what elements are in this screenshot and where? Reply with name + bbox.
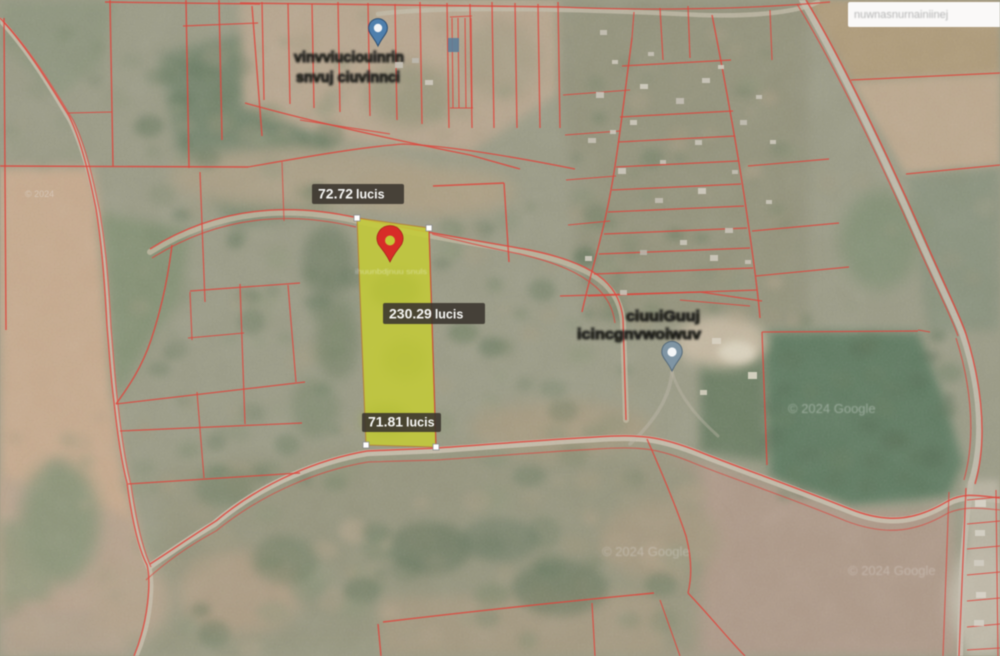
- svg-text:icincgnvwoiwuv: icincgnvwoiwuv: [577, 327, 701, 343]
- svg-text:vinvviuciouinrin: vinvviuciouinrin: [294, 49, 404, 66]
- svg-text:© 2024 Google: © 2024 Google: [848, 563, 936, 578]
- svg-text:72.72lucis: 72.72lucis: [318, 186, 385, 202]
- svg-text:nuwnasnurnainiinej: nuwnasnurnainiinej: [854, 9, 948, 21]
- svg-text:© 2024 Google: © 2024 Google: [602, 544, 690, 559]
- svg-text:© 2024: © 2024: [25, 189, 54, 199]
- svg-text:ciuuiGuuj: ciuuiGuuj: [626, 309, 700, 325]
- svg-text:71.81lucis: 71.81lucis: [368, 414, 435, 430]
- svg-text:© 2024 Google: © 2024 Google: [788, 401, 876, 416]
- svg-text:230.29lucis: 230.29lucis: [389, 306, 463, 322]
- svg-text:snvuj ciuvinnci: snvuj ciuvinnci: [296, 69, 400, 86]
- svg-text:ihuunbdjnuu snuls: ihuunbdjnuu snuls: [355, 269, 428, 276]
